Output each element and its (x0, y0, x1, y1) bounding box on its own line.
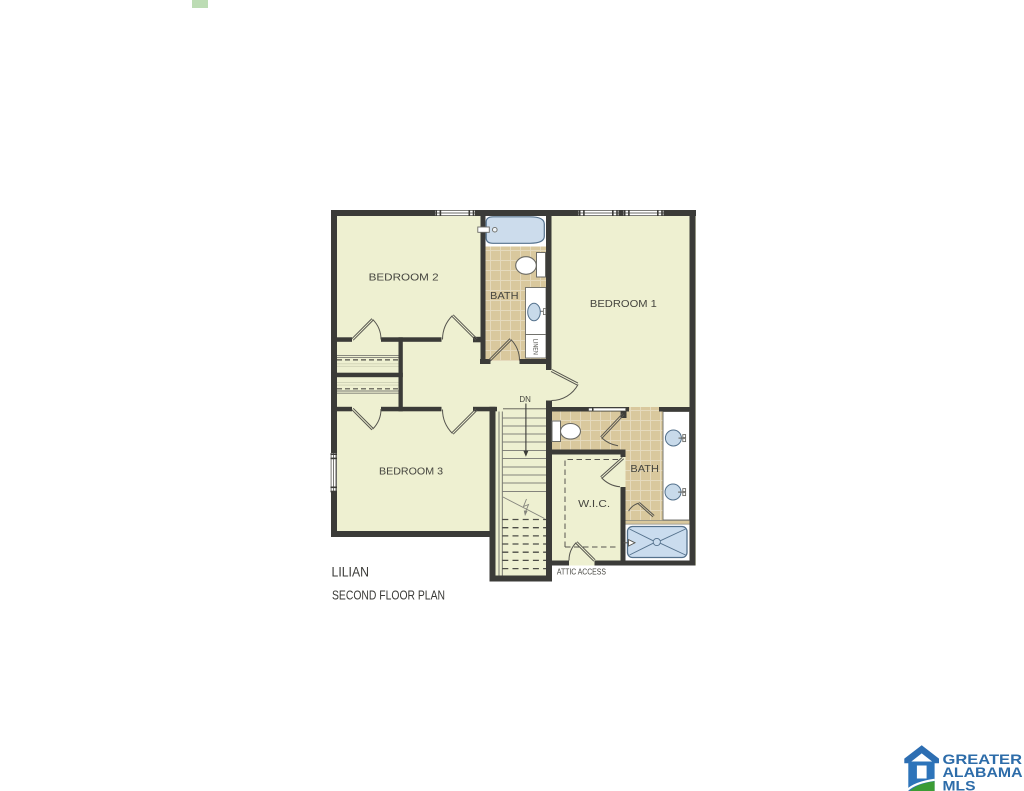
svg-text:BATH: BATH (630, 463, 659, 475)
svg-text:MLS: MLS (943, 777, 976, 791)
svg-text:ATTIC ACCESS: ATTIC ACCESS (557, 567, 606, 576)
svg-text:BATH: BATH (490, 290, 519, 302)
svg-text:LILIAN: LILIAN (332, 564, 370, 580)
svg-text:SECOND FLOOR PLAN: SECOND FLOOR PLAN (332, 589, 445, 603)
svg-text:DN: DN (519, 394, 531, 404)
svg-text:W.I.C.: W.I.C. (578, 498, 610, 510)
svg-text:BEDROOM 1: BEDROOM 1 (590, 298, 657, 310)
svg-text:BEDROOM 3: BEDROOM 3 (379, 465, 443, 477)
svg-text:BEDROOM 2: BEDROOM 2 (369, 271, 439, 283)
svg-text:LINEN: LINEN (531, 339, 538, 355)
